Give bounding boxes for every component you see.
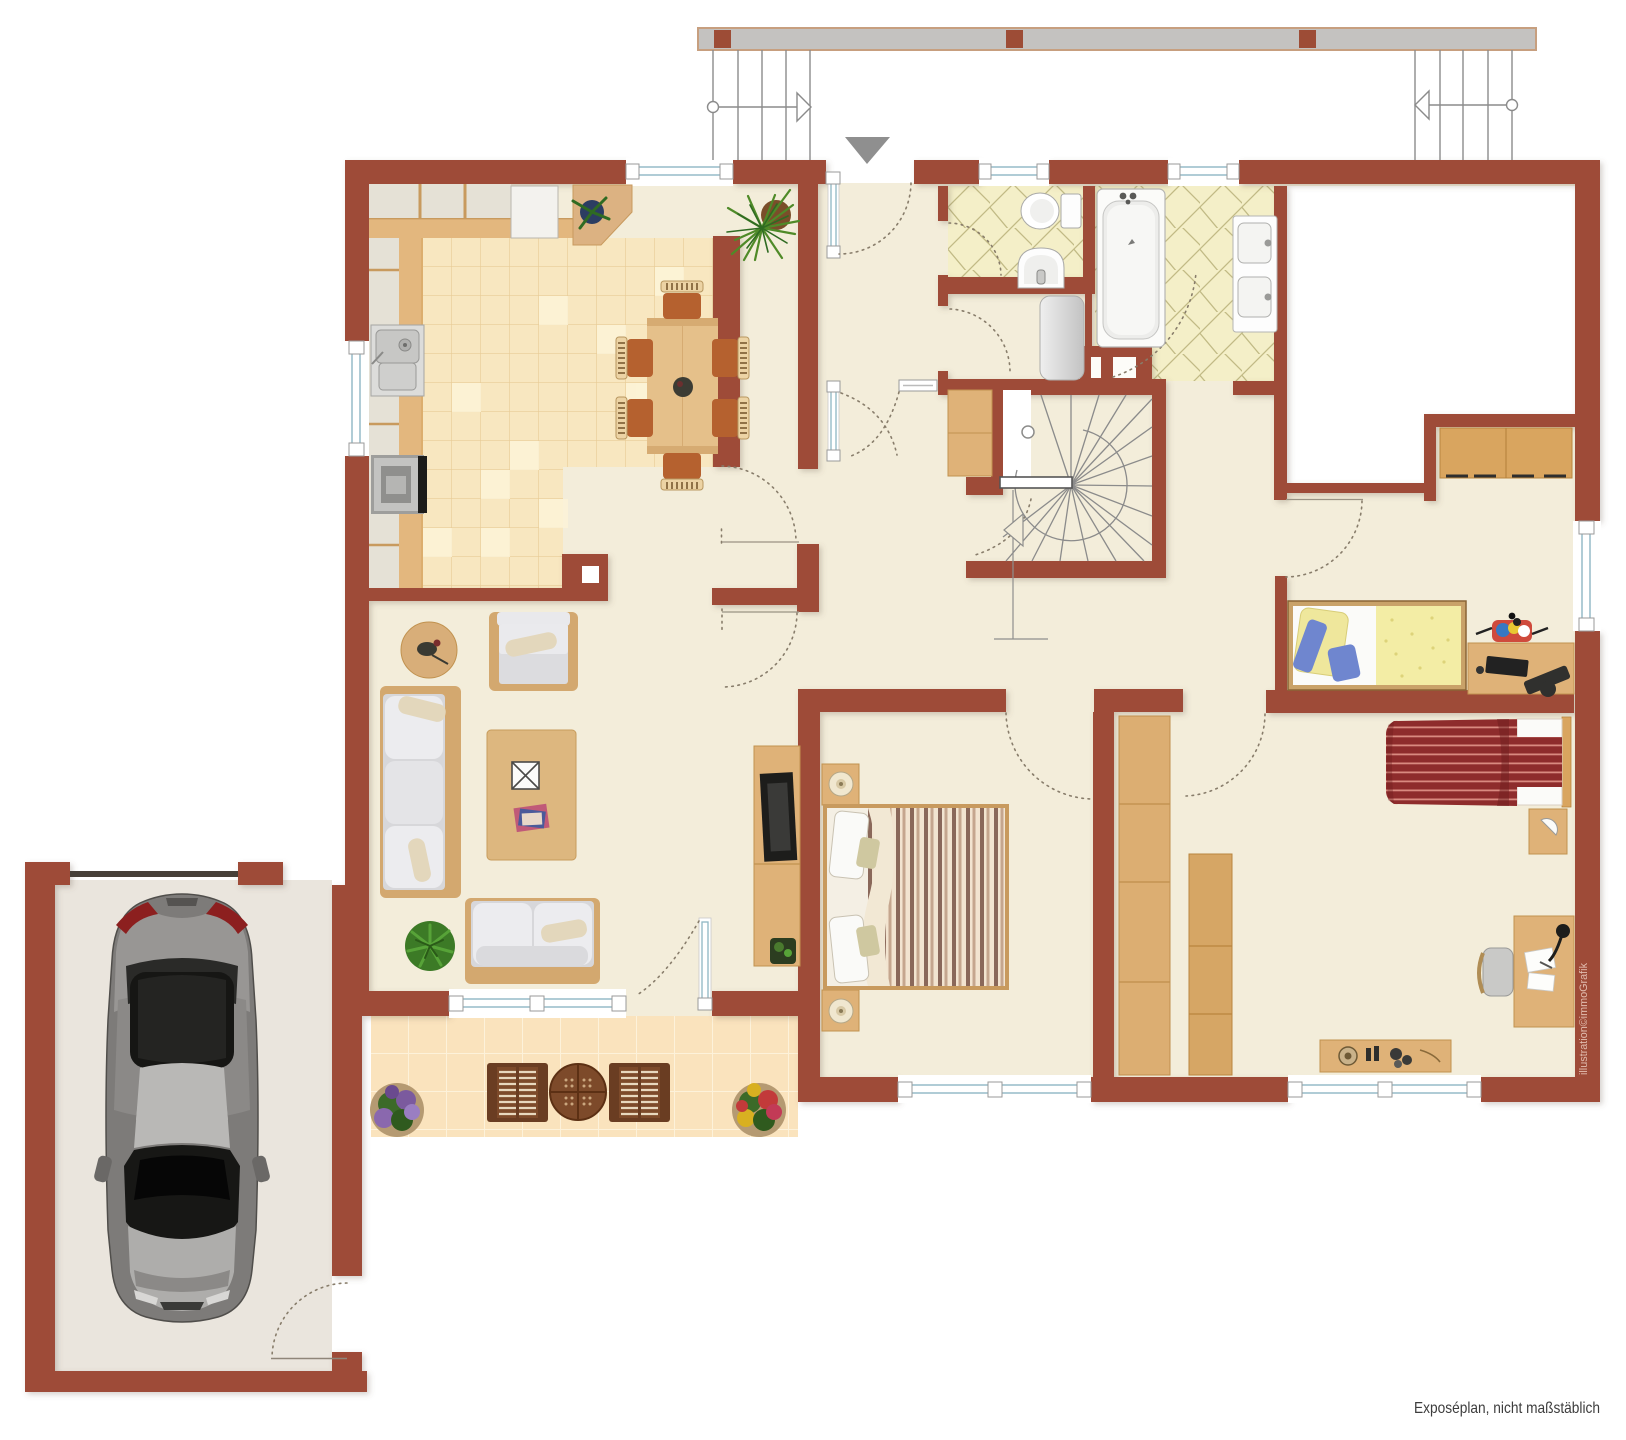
svg-text:illustration©immoGrafik: illustration©immoGrafik	[1578, 963, 1590, 1075]
svg-text:Exposéplan, nicht maßstäblich: Exposéplan, nicht maßstäblich	[1414, 1400, 1600, 1417]
